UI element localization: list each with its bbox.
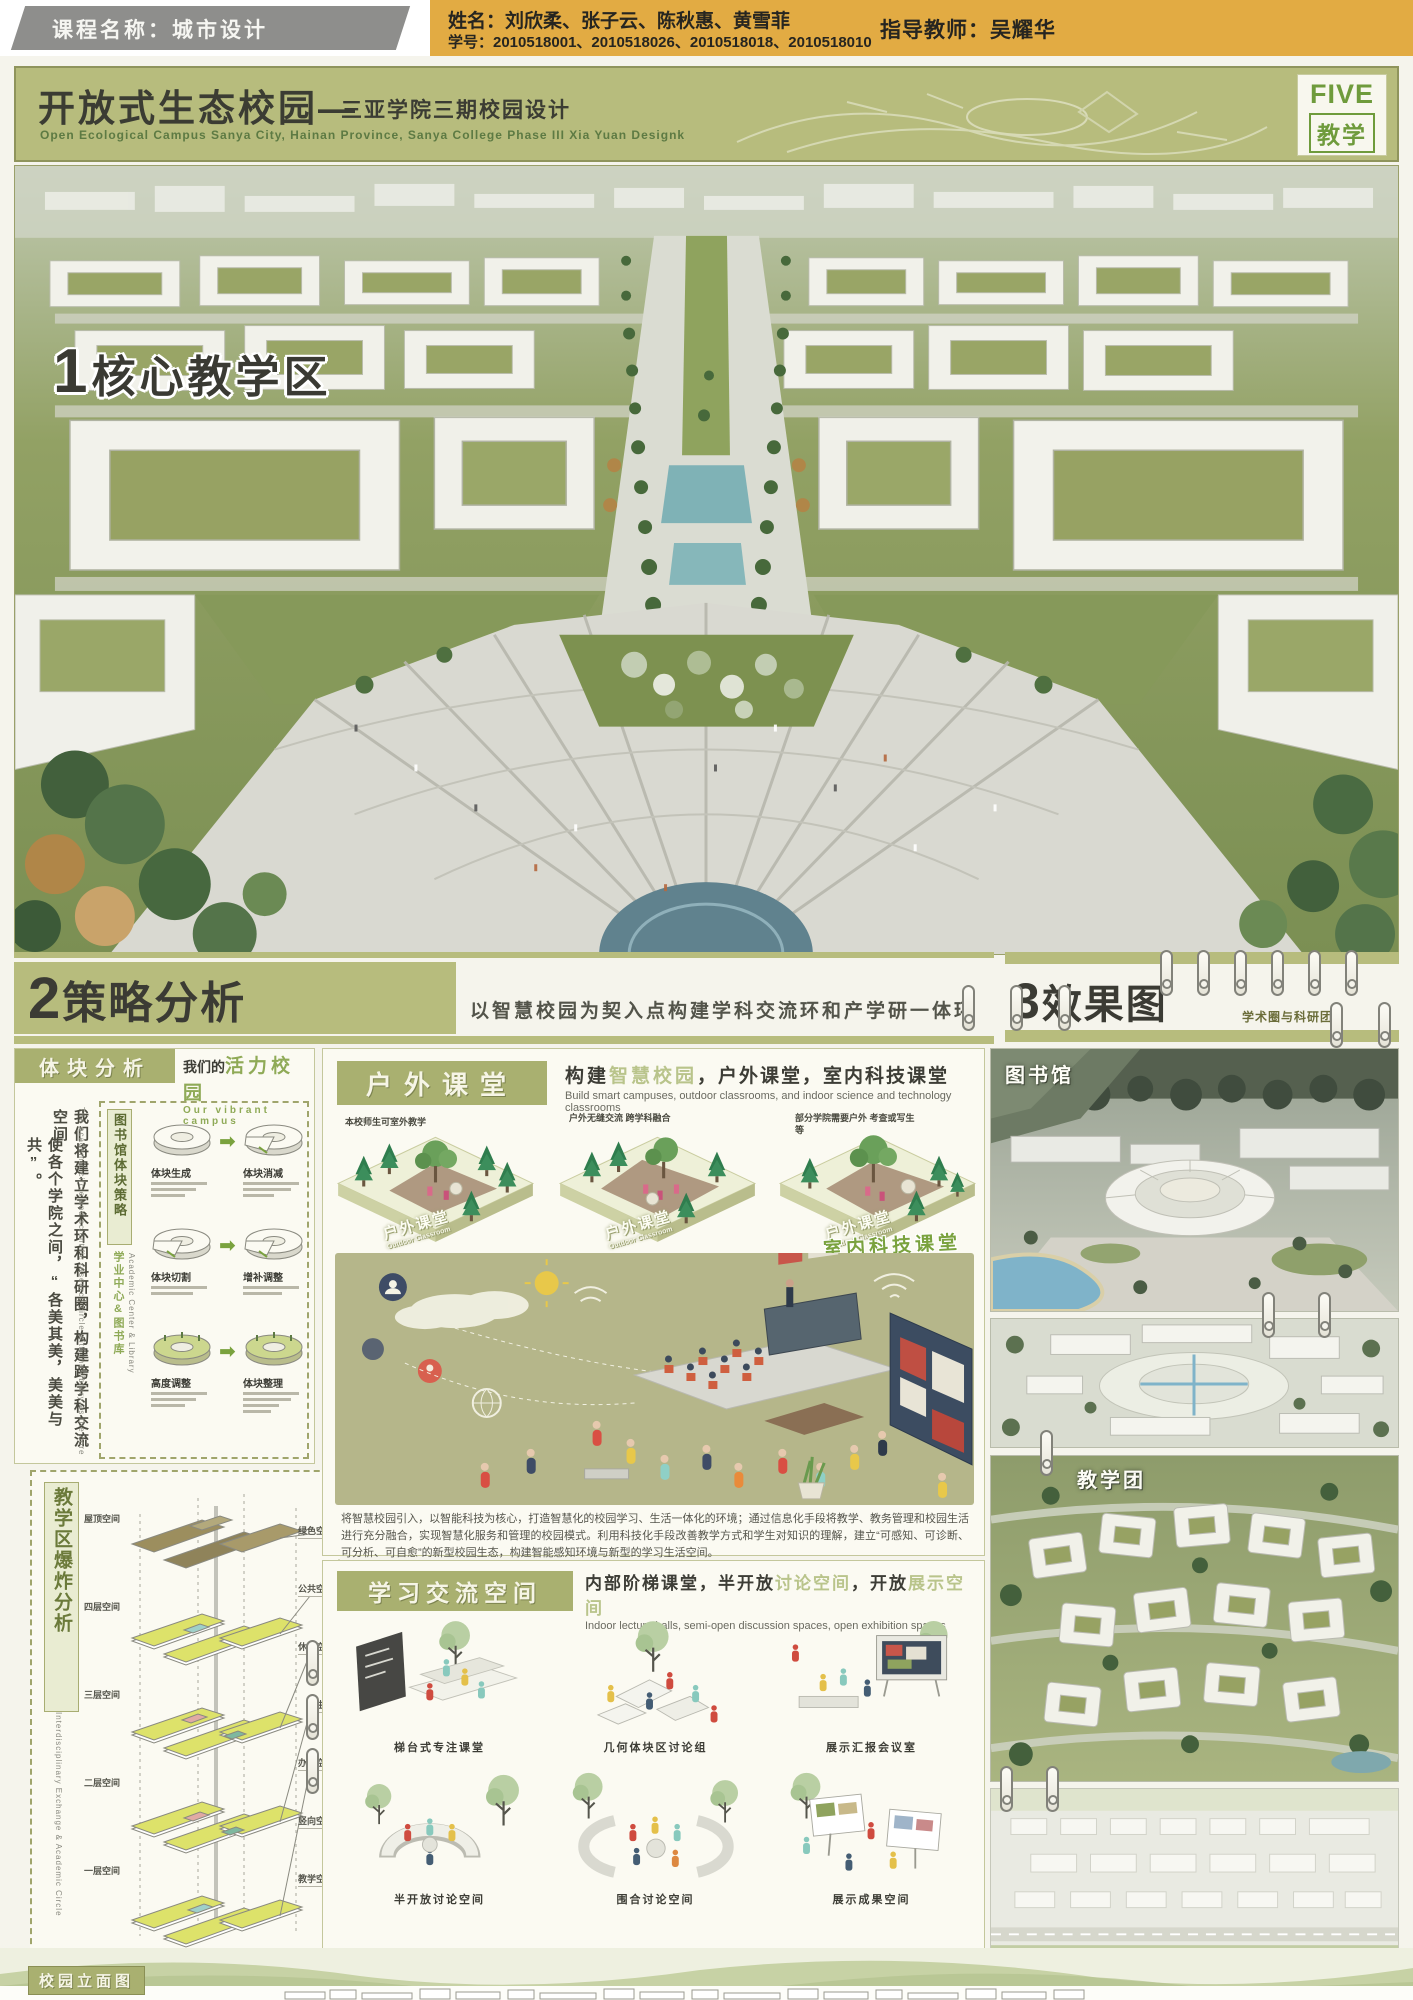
smart-classroom-art — [335, 1253, 974, 1505]
sheet-category: 教学 — [1309, 113, 1375, 153]
strategy-label: 图书馆体块策略 — [107, 1109, 132, 1245]
micro-text-lines — [151, 1283, 207, 1298]
massing-panel: 体块分析 我们的活力校园 Our vibrant campus 使各个学院之间，… — [14, 1048, 315, 1464]
binder-clip — [1046, 1766, 1059, 1812]
exploded-title-en: Interdisciplinary Exchange & Academic Ci… — [54, 1712, 63, 1952]
massing-header: 体块分析 — [15, 1049, 175, 1083]
step-caption: 体块切割 — [151, 1269, 191, 1284]
title-band: 开放式生态校园— 三亚学院三期校园设计 Open Ecological Camp… — [14, 66, 1399, 162]
section2-header: 2策略分析 — [14, 962, 456, 1034]
smart-campus-paragraph: 将智慧校园引入，以智能科技为核心，打造智慧化的校园学习、生活一体化的环境；通过信… — [341, 1511, 969, 1562]
binder-clip — [1318, 1292, 1331, 1338]
binder-clip — [1000, 1766, 1013, 1812]
top-header: 课程名称：城市设计 姓名：刘欣柔、张子云、陈秋惠、黄雪菲 学号：20105180… — [0, 0, 1413, 56]
teaching-render-label: 教学团 — [1077, 1464, 1146, 1493]
step-diagram — [147, 1327, 217, 1373]
sheet-badge: FIVE 教学 — [1297, 74, 1387, 156]
section1-title: 1核心教学区 — [53, 336, 331, 407]
library-render-label: 图书馆 — [1005, 1059, 1074, 1088]
poster-title: 开放式生态校园— — [38, 78, 358, 132]
course-name-label: 课程名称：城市设计 — [52, 14, 268, 44]
campus-overview-render — [990, 1788, 1399, 1962]
arrow-icon: ➡ — [219, 1233, 236, 1258]
library-render-art — [991, 1049, 1398, 1311]
binder-clip — [1345, 950, 1358, 996]
vignette-enclosed — [553, 1769, 758, 1887]
vignette-caption: 梯台式专注课堂 — [337, 1739, 542, 1755]
elevation-label: 校园立面图 — [28, 1966, 145, 1995]
step-caption: 体块消减 — [243, 1165, 283, 1180]
band-divider-bottom — [14, 1036, 994, 1044]
micro-text-lines — [243, 1283, 299, 1298]
vignette-geometric — [553, 1619, 758, 1737]
floor-label: 四层空间 — [84, 1600, 120, 1613]
binder-clip — [1058, 985, 1071, 1031]
outdoor-subtitle: 构建智慧校园，户外课堂，室内科技课堂 Build smart campuses,… — [565, 1061, 975, 1114]
outdoor-subtitle-en: Build smart campuses, outdoor classrooms… — [565, 1090, 975, 1114]
bottom-elevation-band: 校园立面图 — [0, 1948, 1413, 2000]
title-sketch-decoration — [727, 72, 1287, 160]
step-caption: 体块生成 — [151, 1165, 191, 1180]
tile-note-2: 户外无缝交流 跨学科融合 — [569, 1113, 679, 1125]
floor-label: 二层空间 — [84, 1776, 120, 1789]
binder-clip — [1262, 1292, 1275, 1338]
step-caption: 高度调整 — [151, 1375, 191, 1390]
campus-overview-art — [991, 1789, 1398, 1961]
micro-text-lines — [243, 1179, 299, 1200]
binder-clip — [1040, 1430, 1053, 1476]
section2-title: 策略分析 — [62, 979, 246, 1028]
center-label-en: Academic Center & Library — [127, 1253, 136, 1453]
binder-clip — [1378, 1002, 1391, 1048]
learning-spaces-panel: 学习交流空间 内部阶梯课堂，半开放讨论空间，开放展示空间 Indoor lect… — [322, 1560, 985, 1964]
poster-subtitle: 三亚学院三期校园设计 — [341, 94, 571, 124]
step-diagram — [147, 1221, 217, 1267]
student-ids: 学号：2010518001、2010518026、2010518018、2010… — [448, 31, 872, 52]
section3-title: 3效果图 — [1012, 972, 1168, 1030]
learning-header: 学习交流空间 — [337, 1571, 573, 1611]
poster-subtitle-en: Open Ecological Campus Sanya City, Haina… — [40, 128, 685, 142]
advisor-name: 指导教师：吴耀华 — [880, 14, 1056, 44]
binder-clip — [1234, 950, 1247, 996]
vignette-caption: 展示汇报会议室 — [769, 1739, 974, 1755]
vignette-semiopen — [337, 1769, 542, 1887]
step-diagram — [147, 1117, 217, 1163]
floor-label: 屋顶空间 — [84, 1512, 120, 1525]
arrow-icon: ➡ — [219, 1129, 236, 1154]
outdoor-header: 户外课堂 — [337, 1061, 547, 1105]
micro-text-lines — [243, 1389, 299, 1416]
section1-number: 1 — [53, 337, 91, 406]
teaching-render-art — [991, 1456, 1398, 1781]
plaza-render-art — [991, 1319, 1398, 1447]
micro-text-lines — [151, 1179, 207, 1200]
vignette-caption: 半开放讨论空间 — [337, 1891, 542, 1907]
binder-clip — [1010, 985, 1023, 1031]
binder-clip — [962, 985, 975, 1031]
vignette-caption: 围合讨论空间 — [553, 1891, 758, 1907]
step-caption: 增补调整 — [243, 1269, 283, 1284]
center-label: 学业中心&图书库 — [110, 1251, 126, 1401]
outdoor-classroom-panel: 户外课堂 构建智慧校园，户外课堂，室内科技课堂 Build smart camp… — [322, 1048, 985, 1556]
aerial-render-art — [15, 166, 1398, 954]
poster: 课程名称：城市设计 姓名：刘欣柔、张子云、陈秋惠、黄雪菲 学号：20105180… — [0, 0, 1413, 2000]
section3-subtitle: 学术圈与科研团 — [1242, 1008, 1333, 1025]
exploded-axon-diagram — [124, 1486, 310, 1952]
binder-clip — [306, 1694, 319, 1740]
exploded-axon-panel: 教学区爆炸分析 Interdisciplinary Exchange & Aca… — [30, 1470, 340, 1964]
binder-clip — [1330, 1002, 1343, 1048]
step-diagram — [239, 1221, 309, 1267]
library-strategy-box: 图书馆体块策略 学业中心&图书库 Academic Center & Libra… — [99, 1101, 309, 1459]
student-names: 姓名：刘欣柔、张子云、陈秋惠、黄雪菲 — [448, 6, 790, 33]
vignette-caption: 几何体块区讨论组 — [553, 1739, 758, 1755]
arrow-icon: ➡ — [219, 1339, 236, 1364]
binder-clip — [1271, 950, 1284, 996]
sheet-number: FIVE — [1298, 79, 1386, 110]
binder-clip — [306, 1748, 319, 1794]
vignette-exhibition — [769, 1769, 974, 1887]
section2-number: 2 — [28, 966, 62, 1031]
micro-text-lines — [151, 1389, 207, 1410]
step-diagram — [239, 1117, 309, 1163]
step-caption: 体块整理 — [243, 1375, 283, 1390]
binder-clip — [306, 1640, 319, 1686]
teaching-render: 教学团 — [990, 1455, 1399, 1782]
vignette-presentation — [769, 1619, 974, 1737]
section2-subtitle: 以智慧校园为契入点构建学科交流环和产学研一体环 — [470, 996, 976, 1023]
binder-clip — [1197, 950, 1210, 996]
floor-label: 一层空间 — [84, 1864, 120, 1877]
vignette-lecture — [337, 1619, 542, 1737]
binder-clip — [1308, 950, 1321, 996]
band-divider-top — [14, 952, 994, 958]
core-teaching-render: 1核心教学区 — [14, 165, 1399, 955]
mountain-silhouette — [0, 1948, 1413, 2000]
massing-paragraph-en: The academic circle and scientific resea… — [77, 1107, 86, 1462]
library-render: 图书馆 — [990, 1048, 1399, 1312]
exploded-title: 教学区爆炸分析 — [44, 1482, 79, 1712]
step-diagram — [239, 1327, 309, 1373]
binder-clip — [1160, 950, 1173, 996]
vignette-caption: 展示成果空间 — [769, 1891, 974, 1907]
floor-label: 三层空间 — [84, 1688, 120, 1701]
plaza-render — [990, 1318, 1399, 1448]
smart-classroom-illustration — [335, 1253, 974, 1505]
